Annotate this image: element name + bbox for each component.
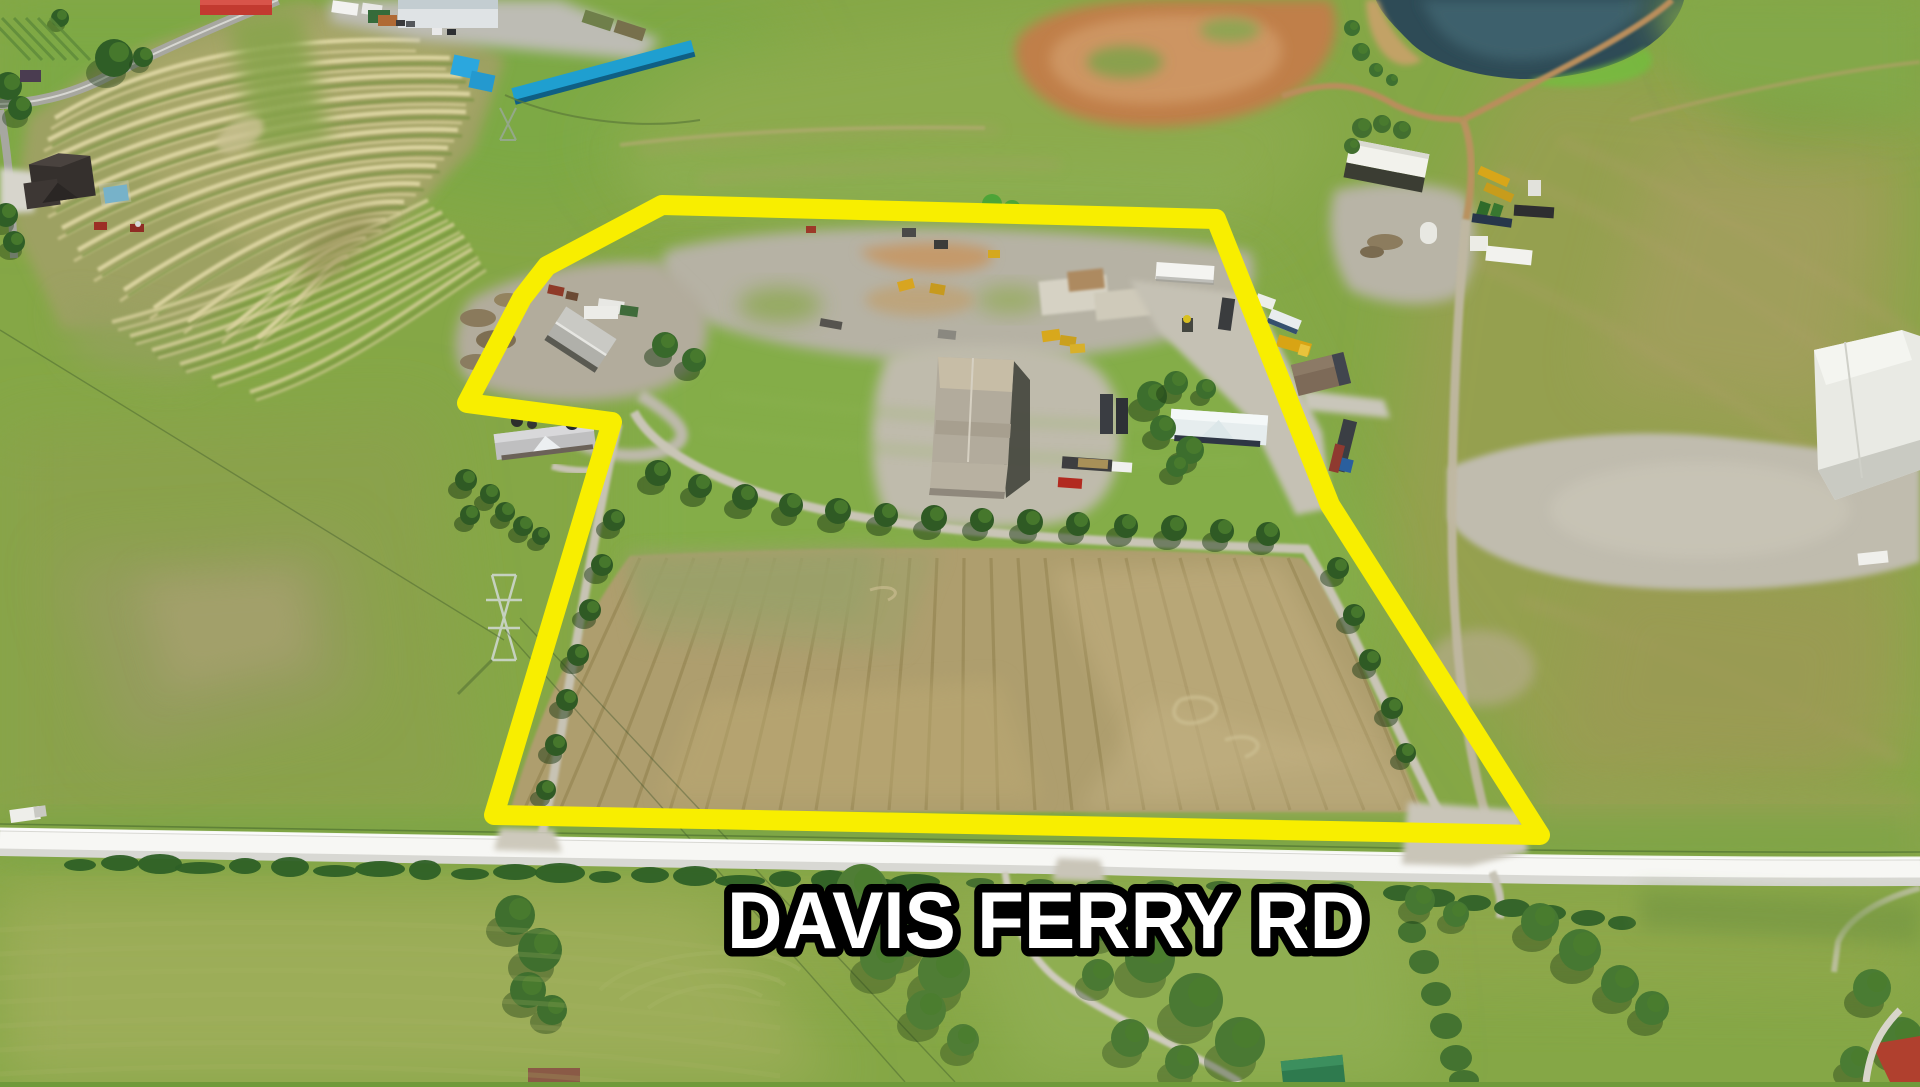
svg-text:DAVIS FERRY RD: DAVIS FERRY RD <box>727 876 1365 966</box>
